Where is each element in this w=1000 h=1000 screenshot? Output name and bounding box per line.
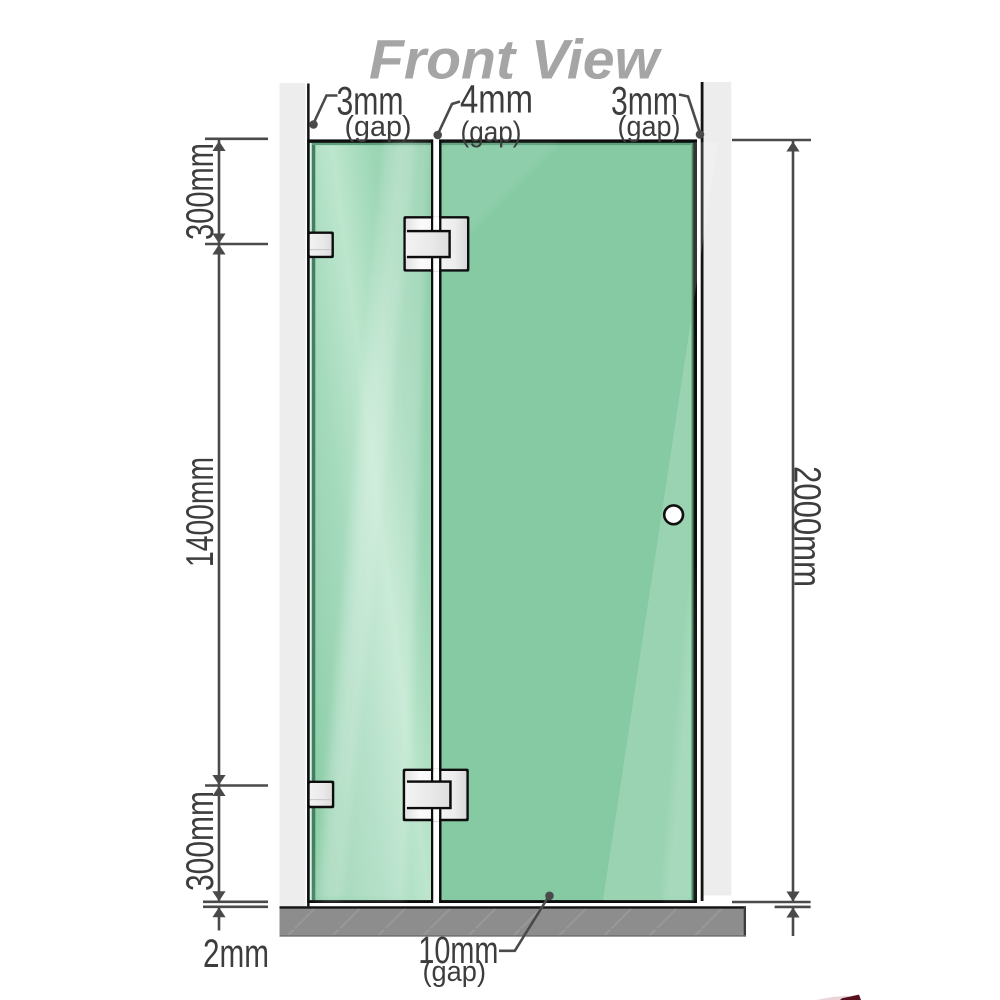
- svg-text:300mm: 300mm: [179, 791, 222, 891]
- svg-text:2000mm: 2000mm: [786, 466, 828, 587]
- svg-text:300mm: 300mm: [179, 143, 222, 240]
- svg-text:(gap): (gap): [345, 111, 412, 143]
- svg-text:4mm: 4mm: [460, 78, 533, 122]
- svg-text:1400mm: 1400mm: [179, 457, 222, 567]
- svg-text:2mm: 2mm: [203, 932, 269, 976]
- svg-text:(gap): (gap): [461, 117, 522, 149]
- svg-text:(gap): (gap): [618, 111, 681, 143]
- svg-text:(gap): (gap): [423, 956, 487, 988]
